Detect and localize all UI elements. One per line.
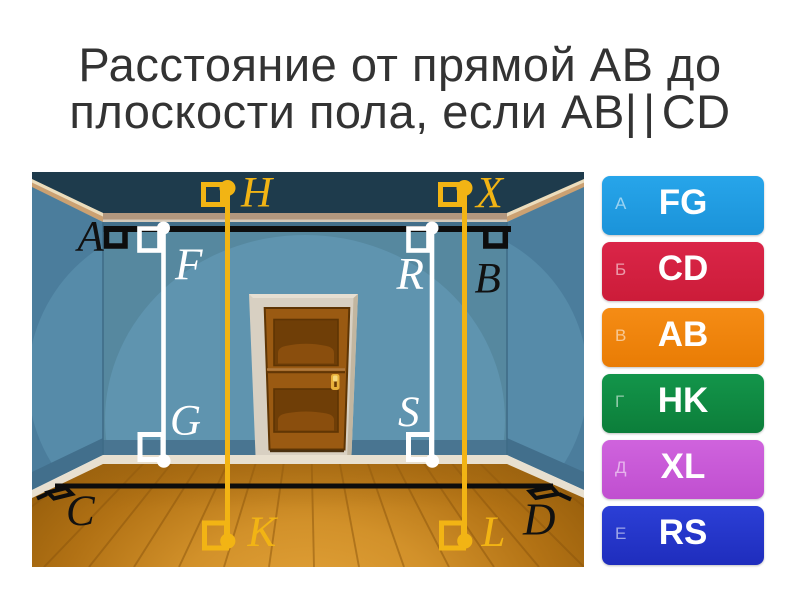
svg-text:R: R <box>396 249 425 299</box>
svg-text:B: B <box>475 256 501 303</box>
svg-text:S: S <box>398 389 420 436</box>
svg-text:H: H <box>240 172 274 217</box>
svg-text:D: D <box>522 495 556 545</box>
svg-text:G: G <box>170 398 201 445</box>
svg-text:C: C <box>66 488 96 535</box>
svg-text:X: X <box>474 172 505 217</box>
svg-text:A: A <box>75 214 105 261</box>
svg-text:L: L <box>481 509 506 556</box>
svg-text:K: K <box>247 509 279 556</box>
svg-text:F: F <box>174 240 203 290</box>
